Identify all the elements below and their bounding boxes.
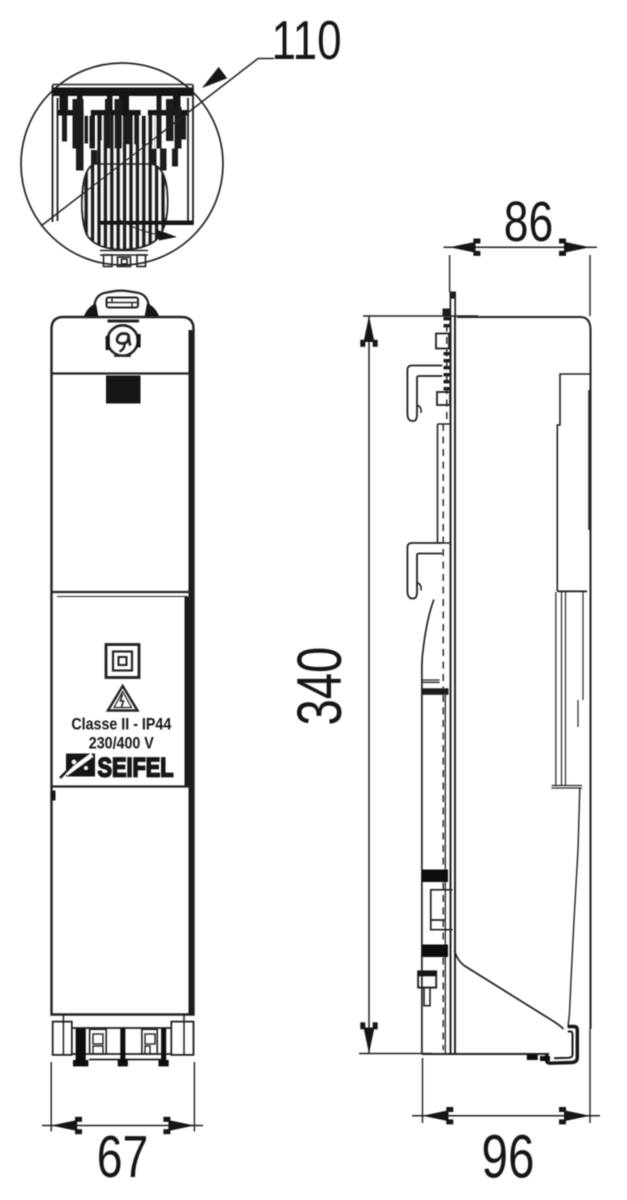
svg-text:230/400 V: 230/400 V [89, 734, 155, 752]
svg-text:67: 67 [97, 1124, 149, 1190]
svg-text:SEIFEL: SEIFEL [98, 754, 174, 784]
svg-text:Classe II - IP44: Classe II - IP44 [71, 715, 171, 733]
svg-text:340: 340 [284, 647, 354, 726]
svg-text:110: 110 [271, 9, 341, 71]
svg-text:86: 86 [504, 190, 553, 254]
svg-text:96: 96 [482, 1122, 535, 1191]
